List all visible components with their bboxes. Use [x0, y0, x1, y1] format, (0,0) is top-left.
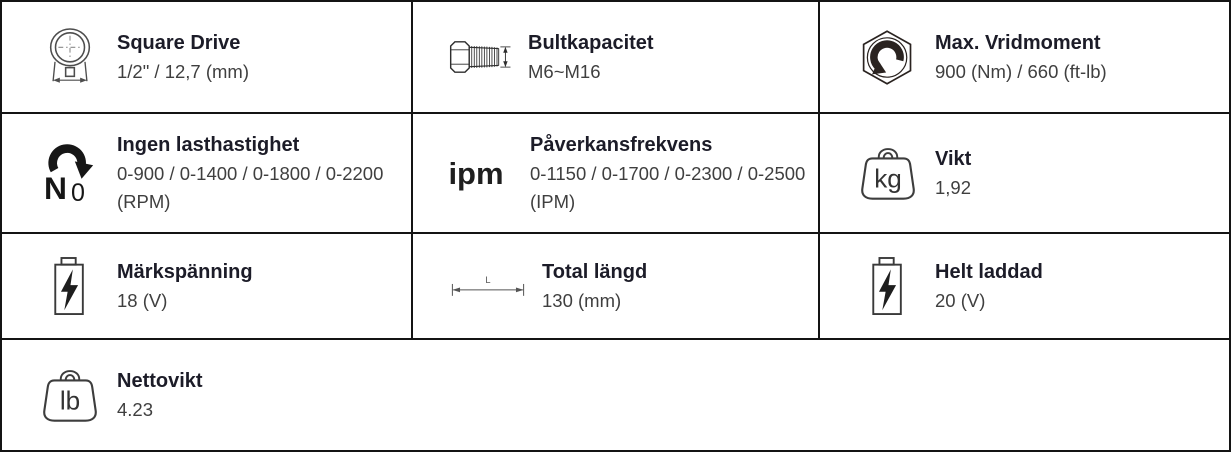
spec-cell-square-drive: Square Drive 1/2" / 12,7 (mm)	[2, 2, 413, 114]
lb-text: lb	[60, 386, 80, 416]
spec-value: M6~M16	[528, 58, 654, 86]
spec-cell-max-torque: Max. Vridmoment 900 (Nm) / 660 (ft-lb)	[820, 2, 1229, 114]
spec-label: Märkspänning	[117, 258, 253, 287]
kg-weight-icon: kg	[856, 143, 920, 203]
spec-value: 20 (V)	[935, 287, 1043, 315]
spec-label: Ingen lasthastighet	[117, 131, 403, 160]
spec-value: 0-900 / 0-1400 / 0-1800 / 0-2200 (RPM)	[117, 160, 403, 216]
no-load-speed-icon: N 0	[38, 142, 102, 204]
length-l-text: L	[485, 275, 490, 285]
spec-value: 0-1150 / 0-1700 / 0-2300 / 0-2500 (IPM)	[530, 160, 810, 216]
bolt-icon	[449, 33, 513, 81]
battery-icon	[38, 256, 102, 317]
spec-value: 1/2" / 12,7 (mm)	[117, 58, 249, 86]
spec-label: Vikt	[935, 145, 971, 174]
hex-nut-rotation-icon	[856, 29, 920, 86]
spec-label: Helt laddad	[935, 258, 1043, 287]
spec-value: 18 (V)	[117, 287, 253, 315]
spec-label: Bultkapacitet	[528, 29, 654, 58]
square-drive-socket-icon	[38, 26, 102, 88]
spec-cell-fully-charged: Helt laddad 20 (V)	[820, 234, 1229, 340]
spec-cell-weight: kg Vikt 1,92	[820, 114, 1229, 234]
spec-cell-bolt-capacity: Bultkapacitet M6~M16	[413, 2, 820, 114]
ipm-icon: ipm	[437, 158, 515, 189]
ipm-text: ipm	[448, 158, 503, 189]
spec-label: Nettovikt	[117, 367, 203, 396]
no-load-sub-text: 0	[71, 179, 85, 204]
spec-label: Påverkansfrekvens	[530, 131, 810, 160]
kg-text: kg	[874, 164, 902, 194]
spec-cell-no-load-speed: N 0 Ingen lasthastighet 0-900 / 0-1400 /…	[2, 114, 413, 234]
spec-value: 900 (Nm) / 660 (ft-lb)	[935, 58, 1107, 86]
spec-value: 130 (mm)	[542, 287, 647, 315]
no-load-n-text: N	[44, 170, 67, 204]
spec-value: 4.23	[117, 396, 203, 424]
spec-cell-total-length: L Total längd 130 (mm)	[413, 234, 820, 340]
lb-weight-icon: lb	[38, 365, 102, 425]
battery-icon	[856, 256, 920, 317]
spec-cell-rated-voltage: Märkspänning 18 (V)	[2, 234, 413, 340]
length-dimension-icon: L	[449, 272, 527, 301]
spec-value: 1,92	[935, 174, 971, 202]
spec-label: Max. Vridmoment	[935, 29, 1107, 58]
spec-label: Total längd	[542, 258, 647, 287]
spec-table: Square Drive 1/2" / 12,7 (mm)	[0, 0, 1231, 452]
spec-cell-impact-rate: ipm Påverkansfrekvens 0-1150 / 0-1700 / …	[413, 114, 820, 234]
spec-cell-net-weight: lb Nettovikt 4.23	[2, 340, 1229, 450]
spec-label: Square Drive	[117, 29, 249, 58]
